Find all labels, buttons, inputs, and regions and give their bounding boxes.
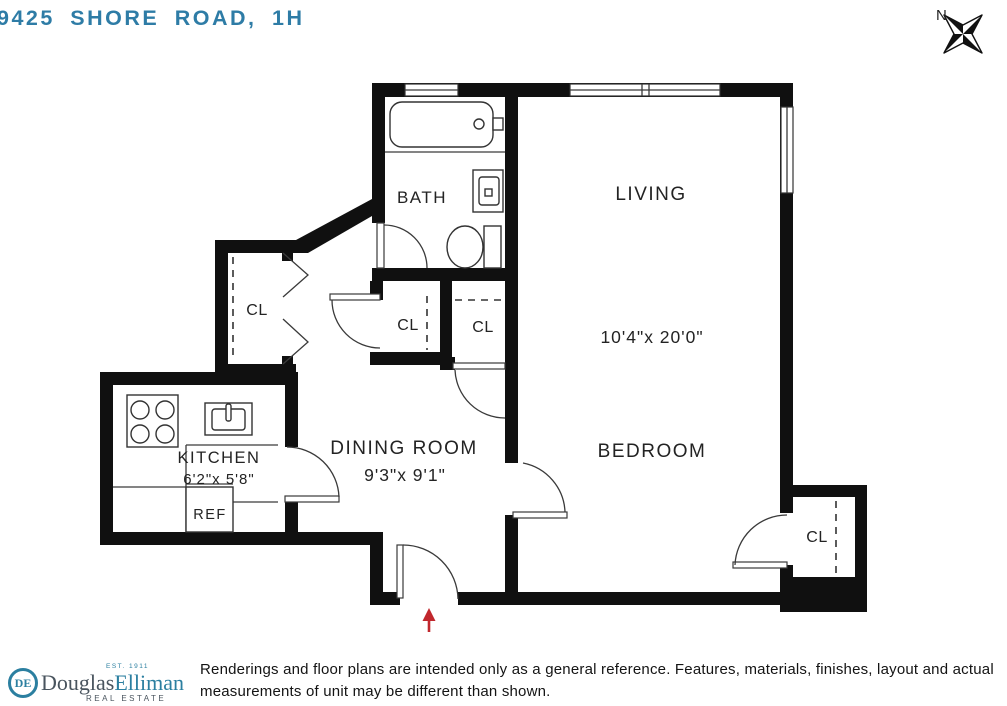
wall-kitchen-bottom [100,532,383,545]
bath-door [377,223,427,268]
label-closet-hall-left: CL [246,302,267,319]
wall-closet2-bottom [370,352,452,365]
disclaimer-line-1: Renderings and floor plans are intended … [200,661,994,678]
compass: N [936,7,982,53]
closet-hall-right-door [453,363,505,418]
bathroom-sink [473,170,503,212]
wall-kitchen-left [100,372,113,545]
wall-closet1-bottom [215,364,296,377]
wall-entry-right [458,592,505,605]
toilet [447,226,501,268]
brand-name-second: Elliman [114,670,184,695]
brand-monogram-icon: DE [8,668,38,698]
room-label-bath: BATH [397,188,447,207]
room-label-kitchen: KITCHEN [178,449,261,467]
brand-tagline: REAL ESTATE [86,694,166,703]
wall-living-left-lower [505,515,518,605]
wall-bath-bottom [372,268,518,281]
bathtub [385,102,505,152]
wall-closet2-closet3-divider [440,281,452,352]
entry-door [397,545,458,599]
wall-kitchen-right-lower [285,499,298,545]
wall-closet1-left [215,240,228,377]
kitchen-sink [205,403,252,435]
closet-bedroom-door [733,515,787,568]
brand-name: DouglasElliman [41,670,184,696]
wall-closet1-top [215,240,296,253]
entry-arrow [423,608,436,632]
closet-bedroom-doorway [780,513,793,565]
bedroom-door [513,463,567,518]
room-label-bedroom: BEDROOM [598,441,707,462]
closet-hall-center-door [330,294,380,348]
brand-est: EST. 1911 [106,663,149,670]
compass-n-label: N [936,7,947,24]
wall-diagonal [296,199,372,253]
room-dim-dining: 9'3"x 9'1" [364,465,446,485]
label-closet-hall-right: CL [472,319,493,336]
wall-kitchen-right-upper [285,372,298,447]
closet-rods [233,257,836,573]
bath-window [405,84,458,96]
living-window-right [781,107,793,193]
brand-name-first: Douglas [41,670,114,695]
footer: DE DouglasElliman EST. 1911 REAL ESTATE … [0,652,1007,706]
wall-bath-left [372,83,385,223]
bath-fixtures [385,102,505,268]
room-dim-kitchen: 6'2"x 5'8" [183,471,254,488]
room-label-dining: DINING ROOM [330,438,477,459]
brand-logo: DE DouglasElliman EST. 1911 REAL ESTATE [8,660,193,704]
disclaimer-line-2: measurements of unit may be different th… [200,683,551,700]
living-window-top [570,84,720,96]
label-refrigerator: REF [193,507,227,523]
floorplan-svg: N BATH LIVING 10'4"x 20'0" BEDROOM DININ… [0,0,1007,706]
closet-bifold-doors [283,253,308,364]
wall-living-left-upper [505,83,518,463]
stove [127,395,178,447]
room-dim-living: 10'4"x 20'0" [600,327,703,347]
wall-bedroom-bottom [505,592,793,605]
label-closet-bedroom: CL [806,529,827,546]
label-closet-hall-center: CL [397,317,418,334]
room-label-living: LIVING [615,184,686,205]
